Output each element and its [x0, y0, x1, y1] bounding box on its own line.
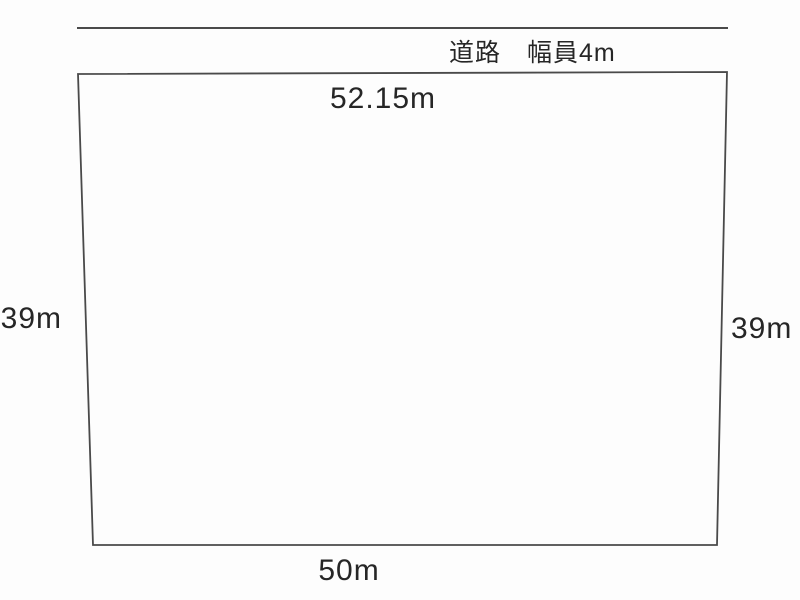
plot-boundary-outline	[78, 72, 727, 545]
dimension-right-label: 39m	[731, 314, 792, 344]
dimension-top-label: 52.15m	[330, 84, 436, 114]
site-plan-diagram: 道路 幅員4m 52.15m 39m 39m 50m	[0, 0, 800, 600]
dimension-left-label: 39m	[1, 304, 62, 334]
dimension-bottom-label: 50m	[318, 556, 379, 586]
road-width-label: 道路 幅員4m	[449, 41, 616, 66]
